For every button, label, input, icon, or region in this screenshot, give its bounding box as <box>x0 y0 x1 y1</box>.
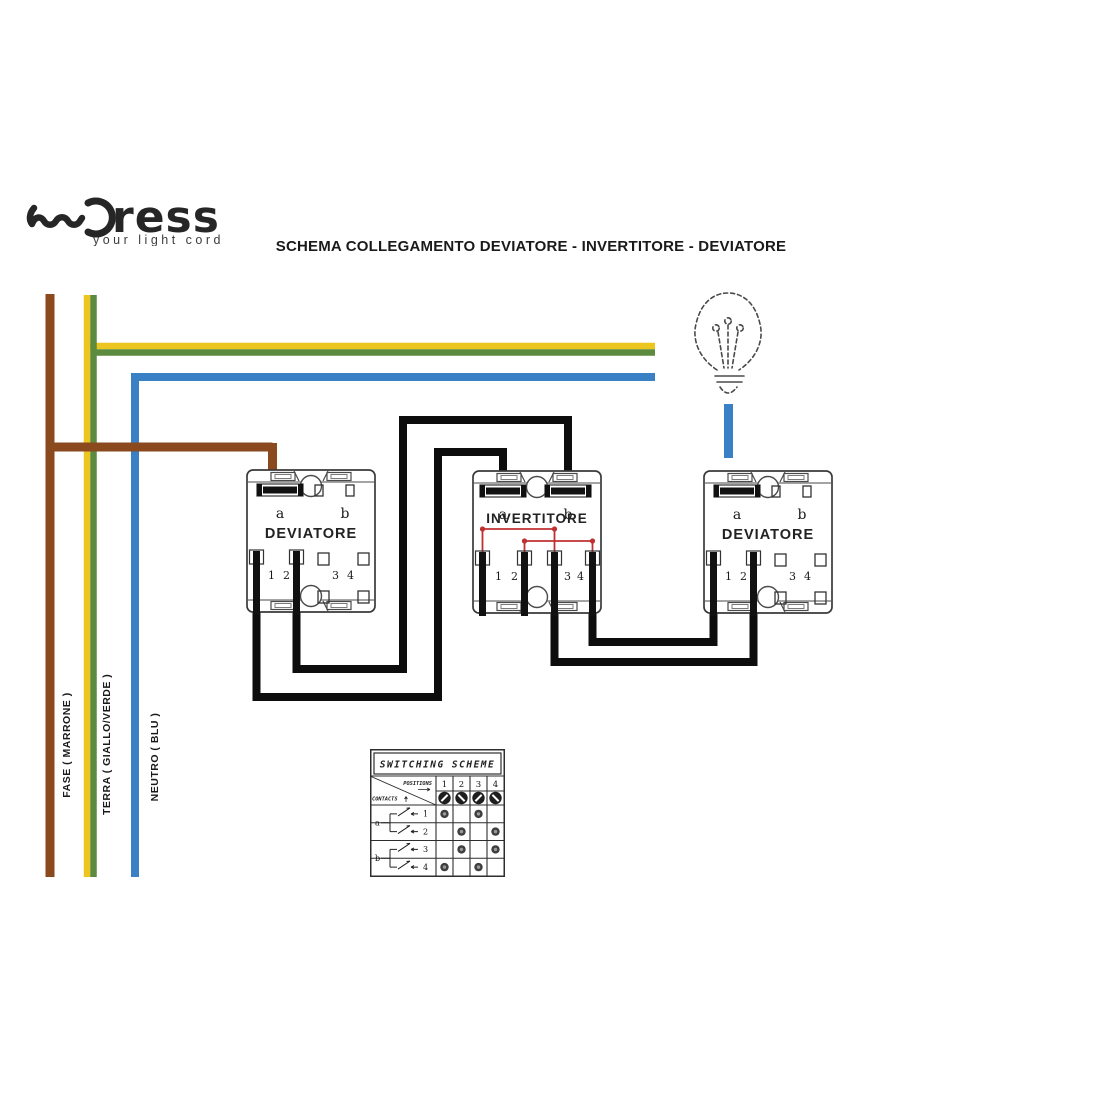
wire-fase-branch <box>46 443 273 470</box>
position-1: 1 <box>442 780 447 790</box>
switching-scheme-table: SWITCHING SCHEME POSITIONS CONTACTS 1 2 … <box>370 749 505 877</box>
group-a-label: a <box>375 819 380 828</box>
label-fase: FASE ( MARRONE ) <box>61 680 73 810</box>
terminal-2-label: 2 <box>511 570 518 583</box>
terminal-1-label: 1 <box>495 570 502 583</box>
terminal-3-label: 3 <box>789 570 796 583</box>
terminal-3-label: 3 <box>332 569 339 582</box>
label-terra: TERRA ( GIALLO/VERDE ) <box>101 685 113 815</box>
wiring-diagram-page: ress your light cord SCHEMA COLLEGAMENTO… <box>0 0 1100 1100</box>
contact-dot-center <box>443 865 446 868</box>
terminal-a-label: a <box>733 507 741 523</box>
contact-row-3: 3 <box>423 845 428 854</box>
terminal-1-label: 1 <box>725 570 732 583</box>
contact-dot-center <box>494 848 497 851</box>
corner-positions-label: POSITIONS <box>403 781 432 787</box>
table-title: SWITCHING SCHEME <box>380 760 496 771</box>
wire-inv-t4-to-dev2-t1 <box>593 608 714 642</box>
contact-dot-center <box>477 865 480 868</box>
label-neutro: NEUTRO ( BLU ) <box>149 692 161 822</box>
terminal-b-label: b <box>341 506 350 522</box>
terminal-2-label: 2 <box>283 569 290 582</box>
light-bulb-icon <box>687 288 769 406</box>
terminal-4-label: 4 <box>347 569 354 582</box>
terminal-a-label: a <box>276 506 284 522</box>
switch-invertitore: a b INVERTITORE 1 2 3 4 <box>471 469 603 617</box>
contact-dot-center <box>460 848 463 851</box>
contact-dot-center <box>477 812 480 815</box>
position-3: 3 <box>476 780 481 790</box>
terminal-4-label: 4 <box>577 570 584 583</box>
switch-label: INVERTITORE <box>486 511 588 526</box>
contact-dot-center <box>494 830 497 833</box>
position-2: 2 <box>459 780 464 790</box>
switch-label: DEVIATORE <box>265 526 357 542</box>
terminal-1-label: 1 <box>268 569 275 582</box>
contact-dot-center <box>460 830 463 833</box>
terminal-b-label: b <box>798 507 807 523</box>
contact-row-1: 1 <box>423 810 428 819</box>
terminal-2-label: 2 <box>740 570 747 583</box>
corner-contacts-label: CONTACTS <box>372 797 398 803</box>
contact-dot-center <box>443 812 446 815</box>
switch-label: DEVIATORE <box>722 527 814 543</box>
contact-row-4: 4 <box>423 863 428 872</box>
contact-row-2: 2 <box>423 827 428 836</box>
position-4: 4 <box>493 780 498 790</box>
switch-deviatore-left: a b DEVIATORE 1 2 3 4 <box>245 468 377 616</box>
group-b-label: b <box>375 854 380 863</box>
terminal-4-label: 4 <box>804 570 811 583</box>
switch-deviatore-right: a b DEVIATORE 1 2 3 4 <box>702 469 834 617</box>
terminal-3-label: 3 <box>564 570 571 583</box>
